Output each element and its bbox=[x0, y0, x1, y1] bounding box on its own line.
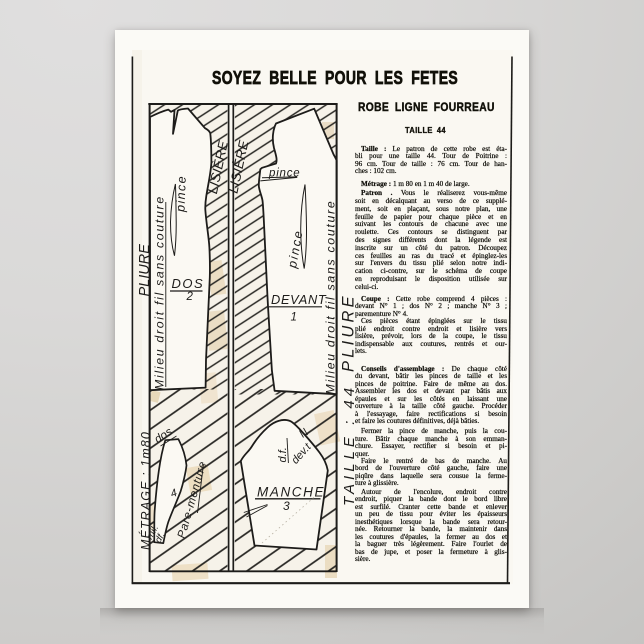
svg-text:2: 2 bbox=[186, 291, 194, 303]
svg-text:DEVANT: DEVANT bbox=[271, 292, 327, 307]
svg-text:3: 3 bbox=[283, 499, 290, 513]
svg-text:MÉTRAGE : 1m80: MÉTRAGE : 1m80 bbox=[138, 431, 153, 550]
svg-text:DOS: DOS bbox=[172, 276, 205, 291]
svg-text:Milieu droit fil sans couture: Milieu droit fil sans couture bbox=[323, 200, 337, 395]
svg-text:MANCHE: MANCHE bbox=[257, 485, 325, 500]
svg-text:Milieu droit fil sans couture: Milieu droit fil sans couture bbox=[153, 195, 167, 390]
svg-text:1: 1 bbox=[291, 312, 297, 324]
svg-text:PLIURE: PLIURE bbox=[137, 244, 153, 297]
svg-text:pince: pince bbox=[268, 168, 301, 180]
svg-text:pince: pince bbox=[173, 175, 188, 213]
